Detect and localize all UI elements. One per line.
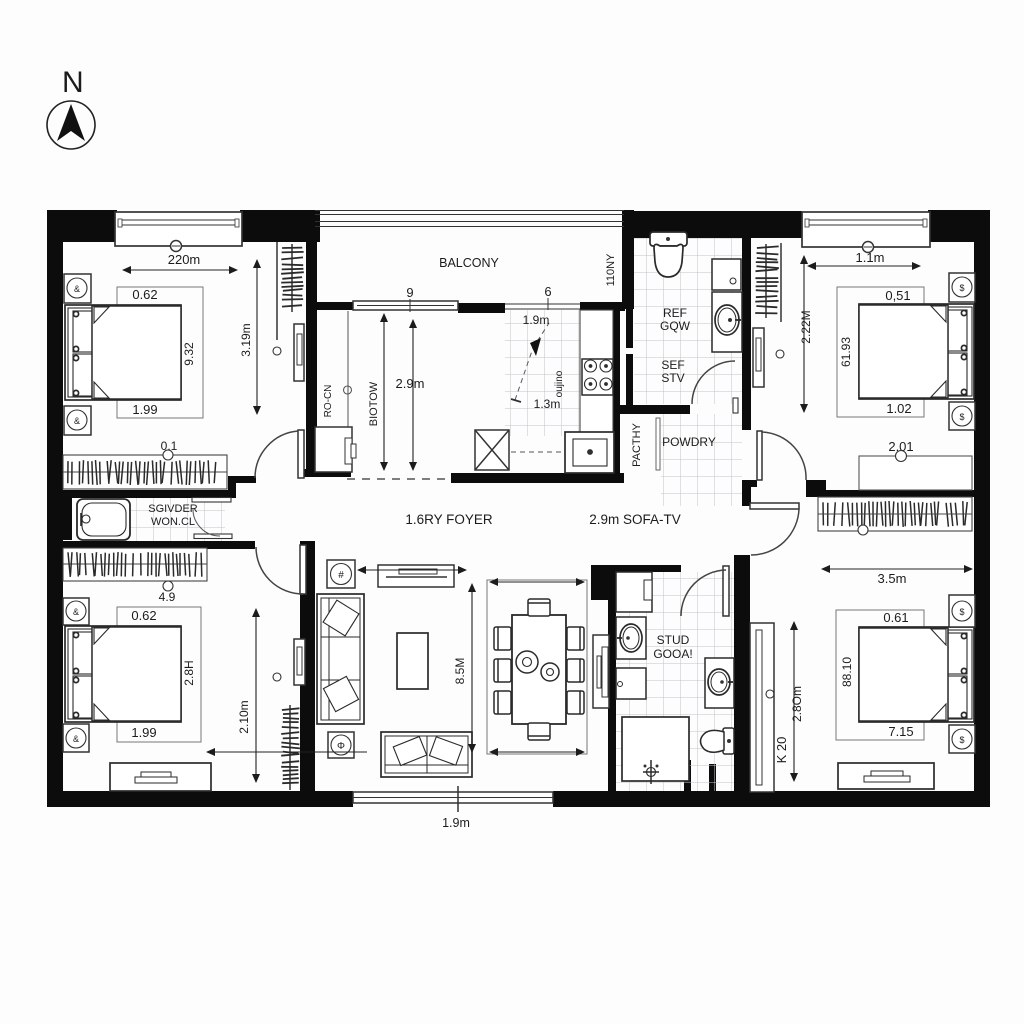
svg-text:2.8Om: 2.8Om <box>790 686 804 722</box>
svg-text:SEF: SEF <box>661 358 684 372</box>
svg-text:2.9m SOFA-TV: 2.9m SOFA-TV <box>589 512 681 527</box>
svg-text:7.15: 7.15 <box>888 724 913 739</box>
svg-text:1.3m: 1.3m <box>534 397 561 411</box>
svg-text:GOOA!: GOOA! <box>653 647 692 661</box>
svg-text:9.32: 9.32 <box>182 342 196 366</box>
svg-text:1.6RY FOYER: 1.6RY FOYER <box>405 512 493 527</box>
svg-text:9: 9 <box>406 285 413 300</box>
svg-text:3.5m: 3.5m <box>878 571 907 586</box>
svg-text:1.02: 1.02 <box>886 401 911 416</box>
svg-text:oujino: oujino <box>554 370 565 397</box>
svg-text:STUD: STUD <box>657 633 690 647</box>
svg-text:GQW: GQW <box>660 319 691 333</box>
svg-text:1.9m: 1.9m <box>442 816 470 830</box>
svg-text:0.1: 0.1 <box>161 439 178 453</box>
svg-text:1.99: 1.99 <box>132 402 157 417</box>
svg-text:4.9: 4.9 <box>159 590 176 604</box>
svg-text:0,51: 0,51 <box>885 288 910 303</box>
svg-text:2.8H: 2.8H <box>182 660 196 685</box>
svg-text:$: $ <box>959 735 964 745</box>
svg-text:N: N <box>62 66 84 99</box>
svg-text:8.5M: 8.5M <box>453 658 467 685</box>
svg-text:BALCONY: BALCONY <box>439 256 499 270</box>
svg-text:WON.CL: WON.CL <box>151 516 195 528</box>
svg-text:#: # <box>338 570 344 581</box>
svg-text:&: & <box>74 284 80 294</box>
svg-text:61.93: 61.93 <box>839 337 853 367</box>
svg-text:0.61: 0.61 <box>883 610 908 625</box>
svg-text:1.9m: 1.9m <box>523 313 550 327</box>
svg-text:6: 6 <box>544 284 551 299</box>
svg-text:3.19m: 3.19m <box>239 323 253 356</box>
svg-text:STV: STV <box>661 371 684 385</box>
svg-text:220m: 220m <box>168 252 201 267</box>
svg-text:&: & <box>73 607 79 617</box>
svg-text:BIOTOW: BIOTOW <box>368 381 380 426</box>
svg-text:110NY: 110NY <box>605 253 617 286</box>
svg-text:Φ: Φ <box>337 741 345 752</box>
svg-text:&: & <box>73 734 79 744</box>
svg-text:REF: REF <box>663 306 687 320</box>
svg-text:PACTHY: PACTHY <box>631 422 643 466</box>
svg-text:1.1m: 1.1m <box>856 250 885 265</box>
svg-text:2.9m: 2.9m <box>396 376 425 391</box>
svg-text:$: $ <box>959 283 964 293</box>
svg-text:RO-CN: RO-CN <box>323 385 334 418</box>
svg-text:2.22M: 2.22M <box>799 310 813 343</box>
svg-text:2.10m: 2.10m <box>237 700 251 733</box>
svg-text:88.10: 88.10 <box>840 657 854 687</box>
svg-text:$: $ <box>959 412 964 422</box>
svg-text:&: & <box>74 416 80 426</box>
svg-text:POWDRY: POWDRY <box>662 435 716 449</box>
svg-text:K 20: K 20 <box>774 737 789 764</box>
svg-text:$: $ <box>959 607 964 617</box>
svg-text:SGIVDER: SGIVDER <box>148 503 198 515</box>
svg-text:0.62: 0.62 <box>131 608 156 623</box>
svg-text:0.62: 0.62 <box>132 287 157 302</box>
svg-text:1.99: 1.99 <box>131 725 156 740</box>
